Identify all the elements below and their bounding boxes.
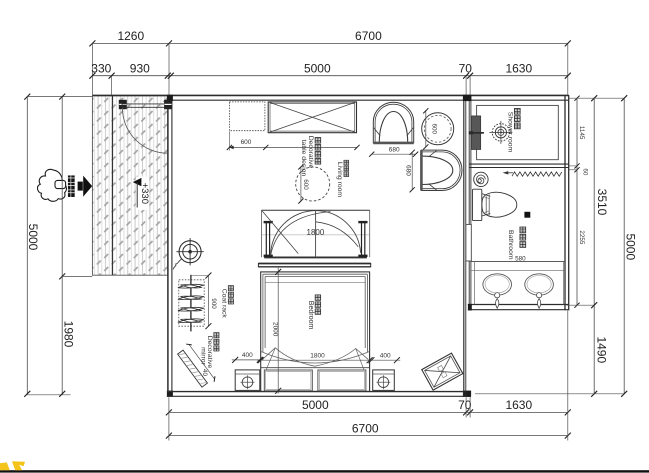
svg-text:1490: 1490 — [594, 336, 608, 363]
svg-text:600: 600 — [431, 124, 438, 135]
svg-text:1800: 1800 — [307, 228, 325, 237]
svg-text:70: 70 — [459, 61, 473, 75]
svg-text:60: 60 — [581, 168, 588, 176]
svg-text:1630: 1630 — [505, 398, 532, 412]
svg-text:900: 900 — [210, 298, 217, 309]
svg-text:400: 400 — [380, 352, 391, 359]
svg-text:40: 40 — [201, 369, 208, 376]
svg-text:Bedroom: Bedroom — [307, 301, 314, 330]
svg-text:Decorative: Decorative — [307, 136, 314, 169]
svg-text:400: 400 — [242, 352, 253, 359]
svg-text:330: 330 — [91, 61, 111, 75]
svg-text:5000: 5000 — [302, 398, 329, 412]
svg-text:1260: 1260 — [117, 29, 144, 43]
svg-text:1800: 1800 — [310, 352, 325, 359]
svg-text:6700: 6700 — [352, 421, 379, 435]
svg-text:1145: 1145 — [578, 126, 585, 140]
svg-text:1630: 1630 — [505, 61, 532, 75]
svg-text:3510: 3510 — [595, 189, 609, 216]
svg-text:Living room: Living room — [336, 162, 343, 197]
svg-text:680: 680 — [389, 147, 400, 154]
svg-text:930: 930 — [130, 61, 150, 75]
svg-text:1980: 1980 — [62, 321, 76, 348]
svg-text:600: 600 — [302, 179, 309, 190]
svg-text:600: 600 — [241, 139, 252, 146]
svg-text:680: 680 — [404, 165, 411, 176]
svg-text:mirror: mirror — [200, 347, 207, 365]
svg-text:Bathroom: Bathroom — [507, 230, 514, 260]
svg-text:2000: 2000 — [272, 322, 279, 337]
svg-text:5000: 5000 — [623, 233, 637, 260]
svg-text:+330: +330 — [139, 183, 150, 204]
svg-text:Shower room: Shower room — [507, 112, 514, 153]
svg-text:5000: 5000 — [304, 61, 331, 75]
svg-text:70: 70 — [458, 398, 472, 412]
svg-text:5000: 5000 — [26, 224, 40, 251]
svg-text:6700: 6700 — [355, 29, 382, 43]
svg-text:Coat rack: Coat rack — [221, 289, 228, 319]
svg-text:2255: 2255 — [578, 230, 585, 245]
